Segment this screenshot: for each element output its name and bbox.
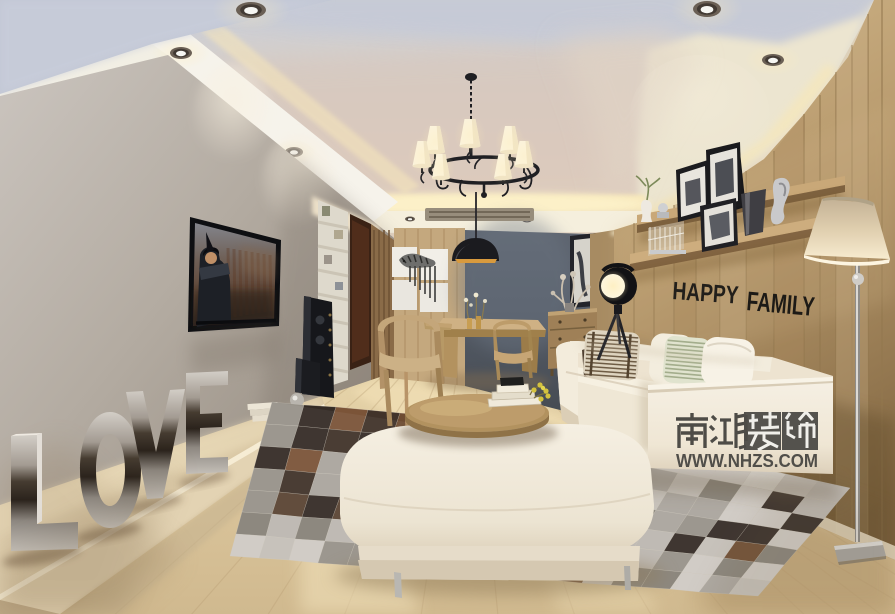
svg-text:WWW.NHZS.COM: WWW.NHZS.COM bbox=[676, 450, 818, 471]
svg-text:FAMILY: FAMILY bbox=[745, 286, 815, 322]
svg-text:HAPPY: HAPPY bbox=[672, 277, 740, 310]
